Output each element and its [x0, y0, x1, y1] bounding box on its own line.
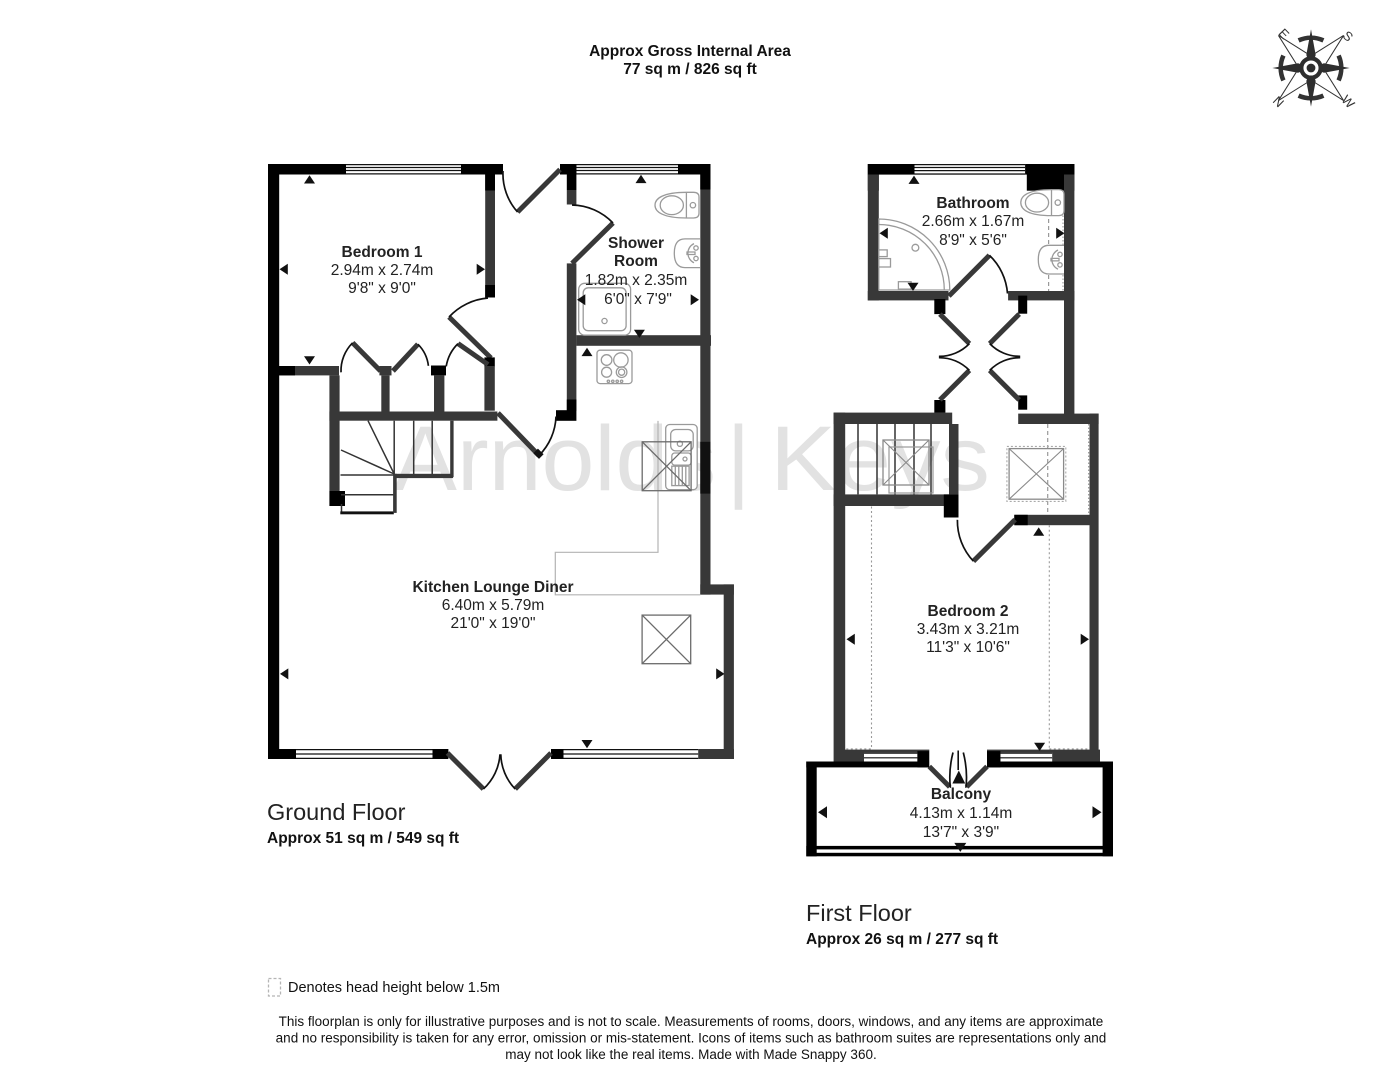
svg-text:Bedroom 2: Bedroom 2	[928, 603, 1009, 620]
svg-text:6'0" x 7'9": 6'0" x 7'9"	[604, 291, 672, 308]
svg-text:Shower: Shower	[608, 235, 664, 252]
svg-text:Room: Room	[614, 253, 658, 270]
svg-text:Approx Gross Internal Area: Approx Gross Internal Area	[589, 43, 791, 60]
svg-text:2.94m x 2.74m: 2.94m x 2.74m	[331, 262, 434, 279]
svg-text:3.43m x 3.21m: 3.43m x 3.21m	[917, 621, 1020, 638]
svg-text:21'0" x 19'0": 21'0" x 19'0"	[450, 615, 535, 632]
svg-text:Balcony: Balcony	[931, 786, 992, 803]
svg-text:8'9" x 5'6": 8'9" x 5'6"	[939, 232, 1007, 249]
svg-text:may not look like the real ite: may not look like the real items. Made w…	[505, 1047, 876, 1062]
svg-text:Denotes head height below 1.5m: Denotes head height below 1.5m	[288, 980, 500, 996]
svg-text:|: |	[727, 408, 751, 510]
svg-text:4.13m x 1.14m: 4.13m x 1.14m	[910, 805, 1013, 822]
svg-text:Approx 26 sq m / 277 sq ft: Approx 26 sq m / 277 sq ft	[806, 931, 998, 948]
svg-text:6.40m x 5.79m: 6.40m x 5.79m	[442, 597, 545, 614]
svg-text:77 sq m / 826 sq ft: 77 sq m / 826 sq ft	[623, 61, 757, 78]
svg-text:Bathroom: Bathroom	[936, 195, 1009, 212]
svg-text:First Floor: First Floor	[806, 900, 912, 926]
svg-text:Kitchen Lounge Diner: Kitchen Lounge Diner	[412, 579, 573, 596]
svg-text:Bedroom 1: Bedroom 1	[342, 244, 423, 261]
svg-text:11'3" x 10'6": 11'3" x 10'6"	[926, 639, 1010, 656]
svg-text:9'8" x 9'0": 9'8" x 9'0"	[348, 280, 416, 297]
svg-text:Approx 51 sq m / 549 sq ft: Approx 51 sq m / 549 sq ft	[267, 830, 459, 847]
svg-text:1.82m x 2.35m: 1.82m x 2.35m	[585, 272, 688, 289]
svg-text:13'7" x 3'9": 13'7" x 3'9"	[923, 824, 999, 841]
svg-text:and no responsibility is taken: and no responsibility is taken for any e…	[276, 1031, 1107, 1046]
svg-text:2.66m x 1.67m: 2.66m x 1.67m	[922, 213, 1025, 230]
svg-text:This floorplan is only for ill: This floorplan is only for illustrative …	[279, 1014, 1104, 1029]
svg-text:Ground Floor: Ground Floor	[267, 799, 406, 825]
